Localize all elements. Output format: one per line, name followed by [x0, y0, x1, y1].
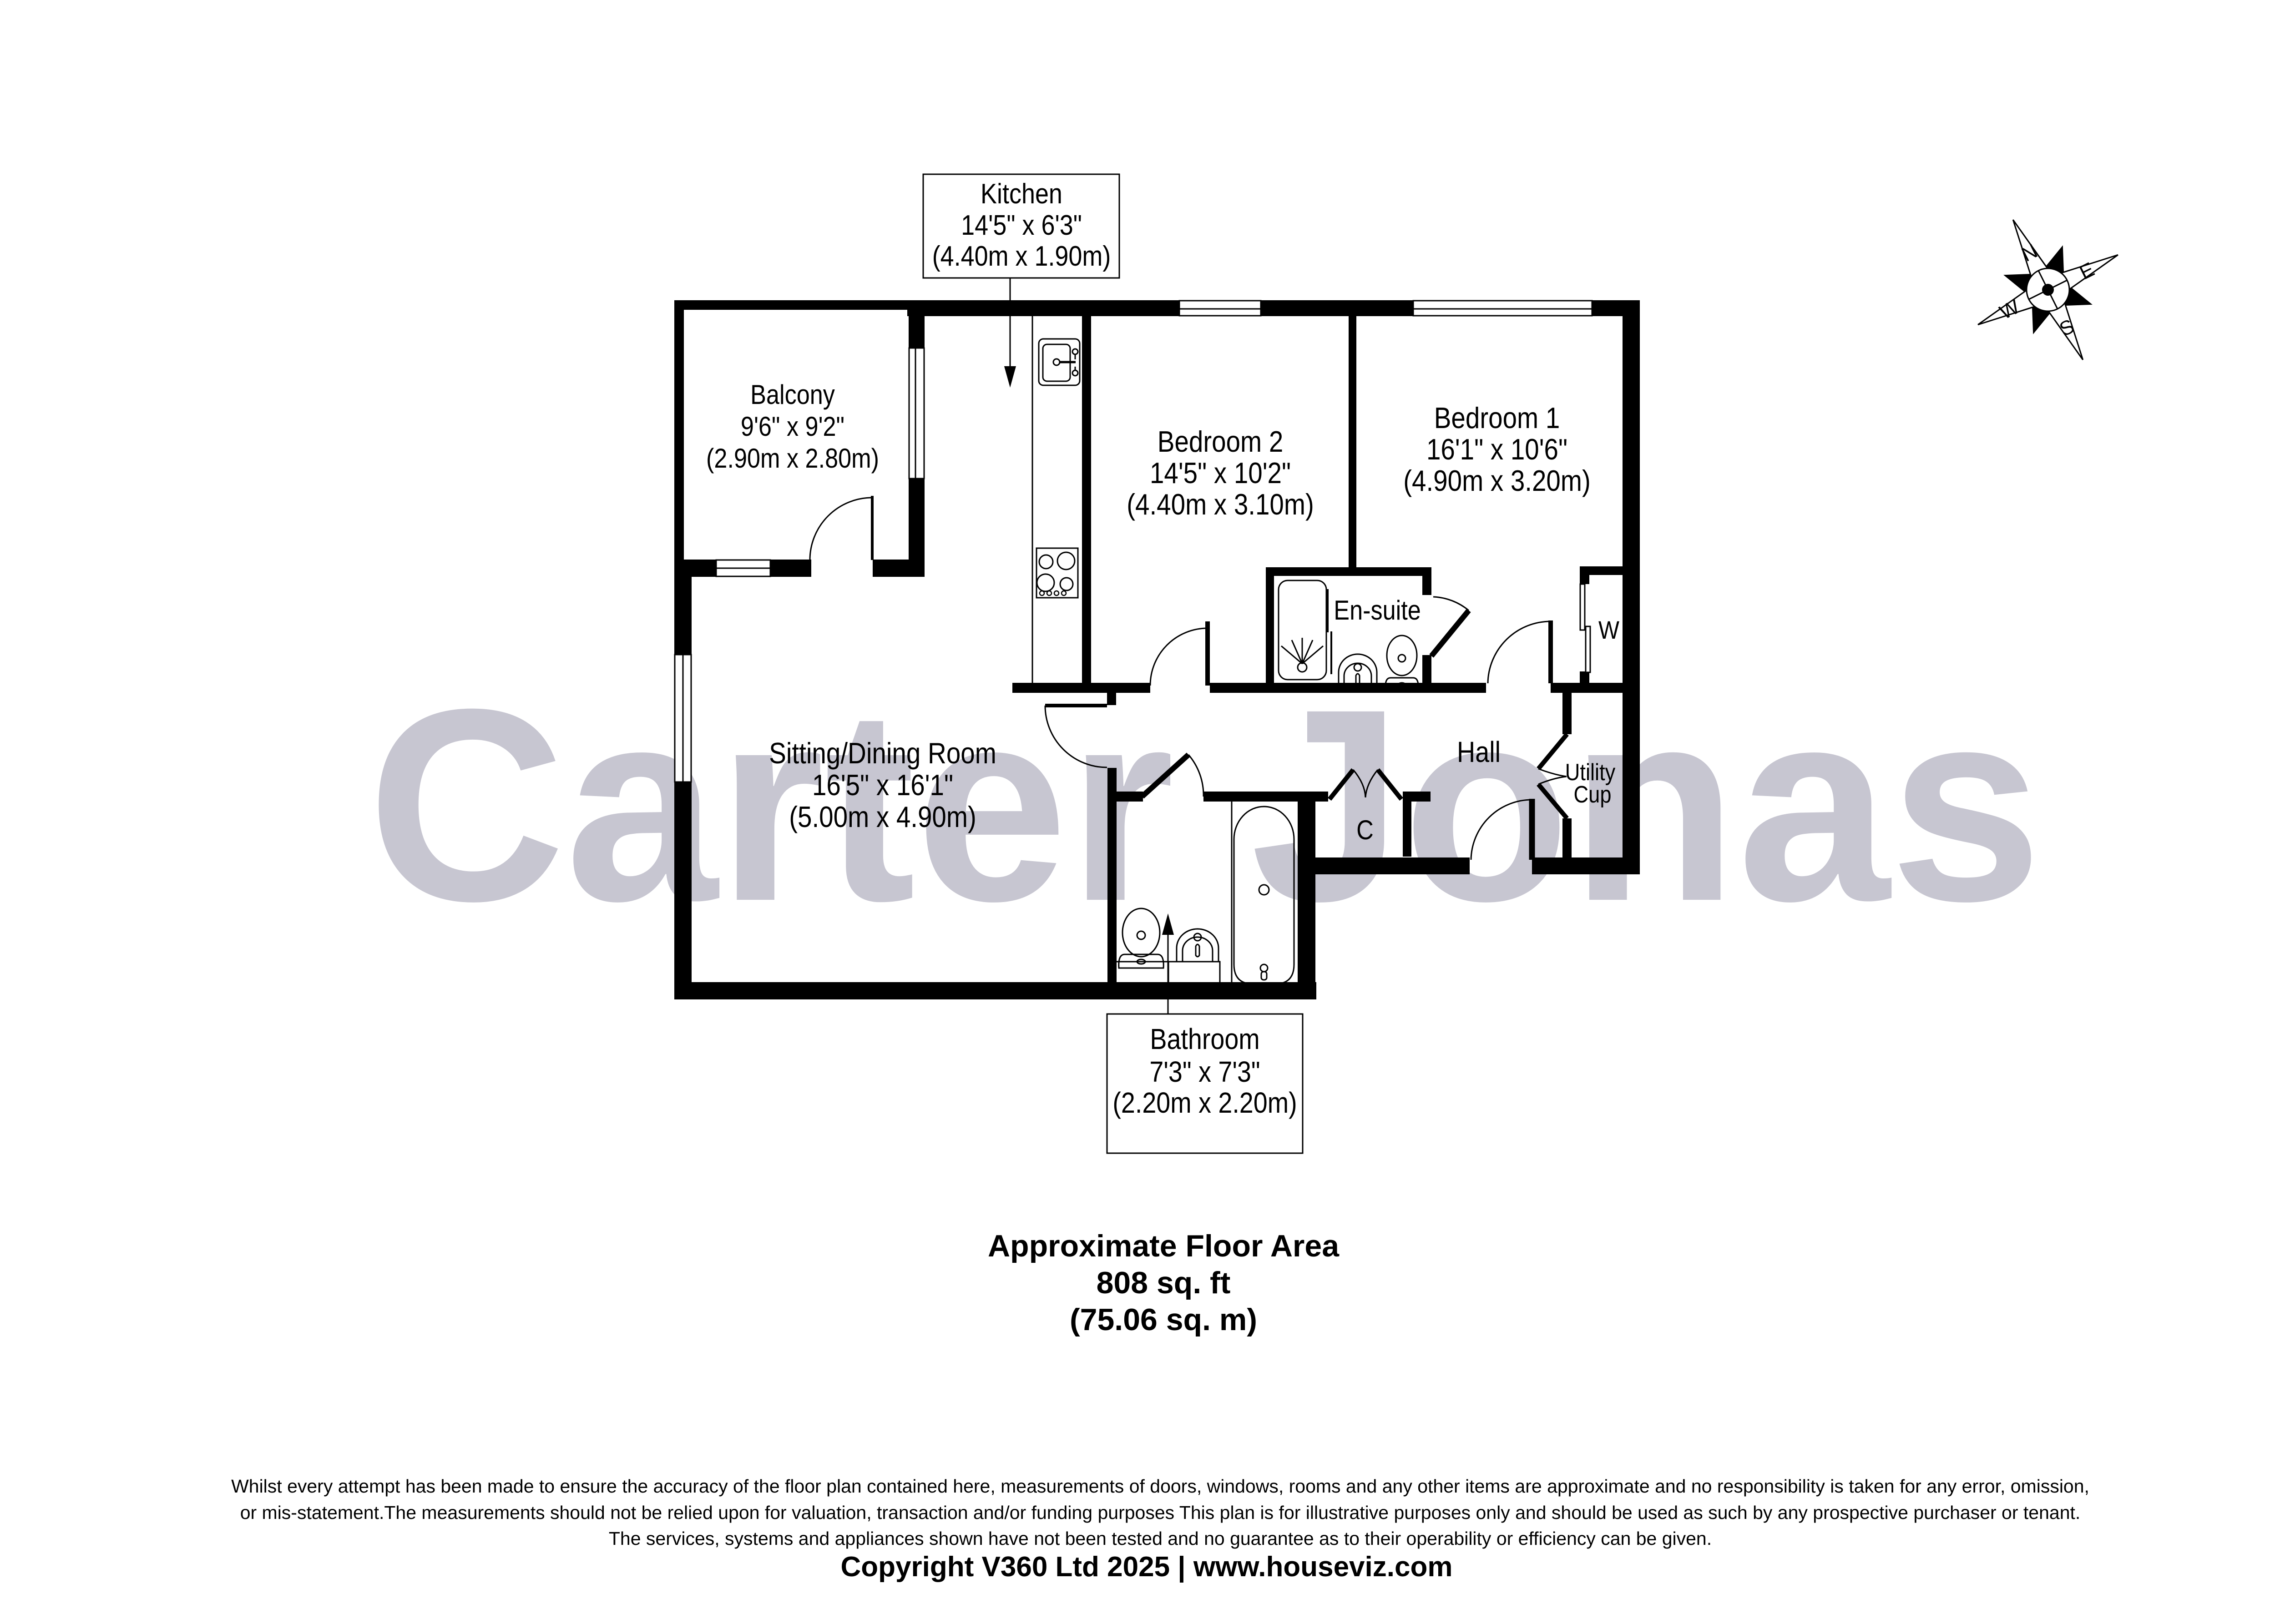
svg-text:Carter Jonas: Carter Jonas	[368, 652, 2042, 958]
svg-text:14'5" x 6'3": 14'5" x 6'3"	[961, 210, 1082, 241]
svg-text:14'5" x 10'2": 14'5" x 10'2"	[1150, 456, 1291, 489]
svg-text:W: W	[1598, 616, 1619, 645]
svg-text:or mis-statement.The measureme: or mis-statement.The measurements should…	[240, 1502, 2081, 1523]
svg-text:(4.40m x 1.90m): (4.40m x 1.90m)	[932, 241, 1111, 272]
svg-text:Bedroom 1: Bedroom 1	[1434, 401, 1560, 434]
svg-text:(4.90m x 3.20m): (4.90m x 3.20m)	[1403, 464, 1591, 497]
svg-text:(2.90m x 2.80m): (2.90m x 2.80m)	[706, 443, 879, 474]
svg-text:16'5" x 16'1": 16'5" x 16'1"	[812, 768, 953, 802]
svg-text:(4.40m x 3.10m): (4.40m x 3.10m)	[1127, 488, 1314, 521]
svg-text:9'6" x 9'2": 9'6" x 9'2"	[741, 411, 844, 442]
svg-text:Cup: Cup	[1574, 782, 1612, 808]
svg-text:Kitchen: Kitchen	[981, 178, 1062, 210]
svg-text:7'3" x 7'3": 7'3" x 7'3"	[1149, 1055, 1260, 1088]
svg-text:Hall: Hall	[1457, 736, 1501, 768]
svg-text:The services, systems and appl: The services, systems and appliances sho…	[609, 1528, 1712, 1549]
svg-text:(2.20m x 2.20m): (2.20m x 2.20m)	[1112, 1086, 1297, 1119]
svg-text:Copyright V360 Ltd 2025 | www.: Copyright V360 Ltd 2025 | www.houseviz.c…	[841, 1551, 1453, 1583]
svg-text:808 sq. ft: 808 sq. ft	[1097, 1266, 1231, 1300]
svg-text:16'1" x 10'6": 16'1" x 10'6"	[1426, 433, 1567, 466]
svg-text:Sitting/Dining Room: Sitting/Dining Room	[769, 736, 996, 770]
svg-text:Approximate Floor Area: Approximate Floor Area	[988, 1229, 1340, 1263]
svg-text:Bedroom 2: Bedroom 2	[1158, 425, 1284, 458]
svg-text:C: C	[1356, 815, 1374, 845]
svg-text:(5.00m x 4.90m): (5.00m x 4.90m)	[789, 800, 976, 833]
svg-text:Balcony: Balcony	[750, 379, 835, 410]
svg-text:Bathroom: Bathroom	[1150, 1023, 1259, 1055]
svg-text:(75.06 sq. m): (75.06 sq. m)	[1070, 1302, 1257, 1337]
svg-text:Whilst every attempt has been: Whilst every attempt has been made to en…	[231, 1476, 2089, 1497]
svg-text:En-suite: En-suite	[1334, 595, 1421, 625]
